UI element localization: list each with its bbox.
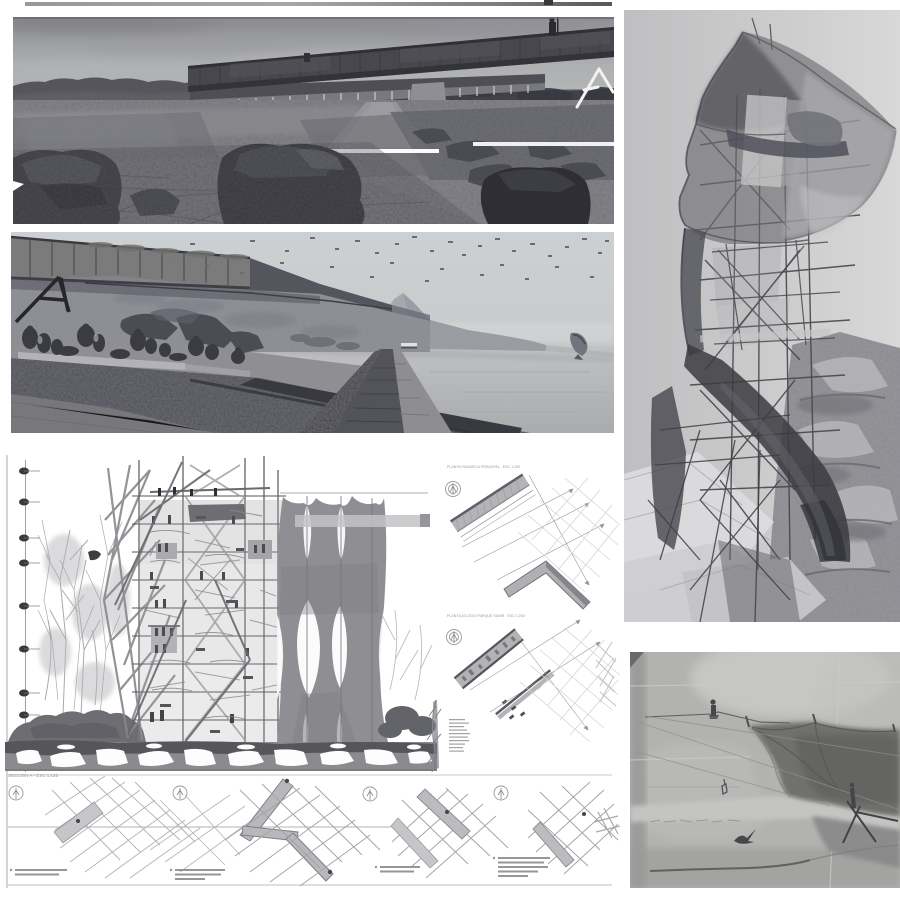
svg-text:PLANTA ACCESO PARQUE SUBIR E: PLANTA ACCESO PARQUE SUBIR ESC 1:250 [447, 614, 525, 618]
svg-text:PLANTA PASARELA PRINCIPAL ES: PLANTA PASARELA PRINCIPAL ESC 1:250 [447, 465, 520, 469]
svg-text:SECCION A - ESC 1:125: SECCION A - ESC 1:125 [8, 773, 59, 778]
